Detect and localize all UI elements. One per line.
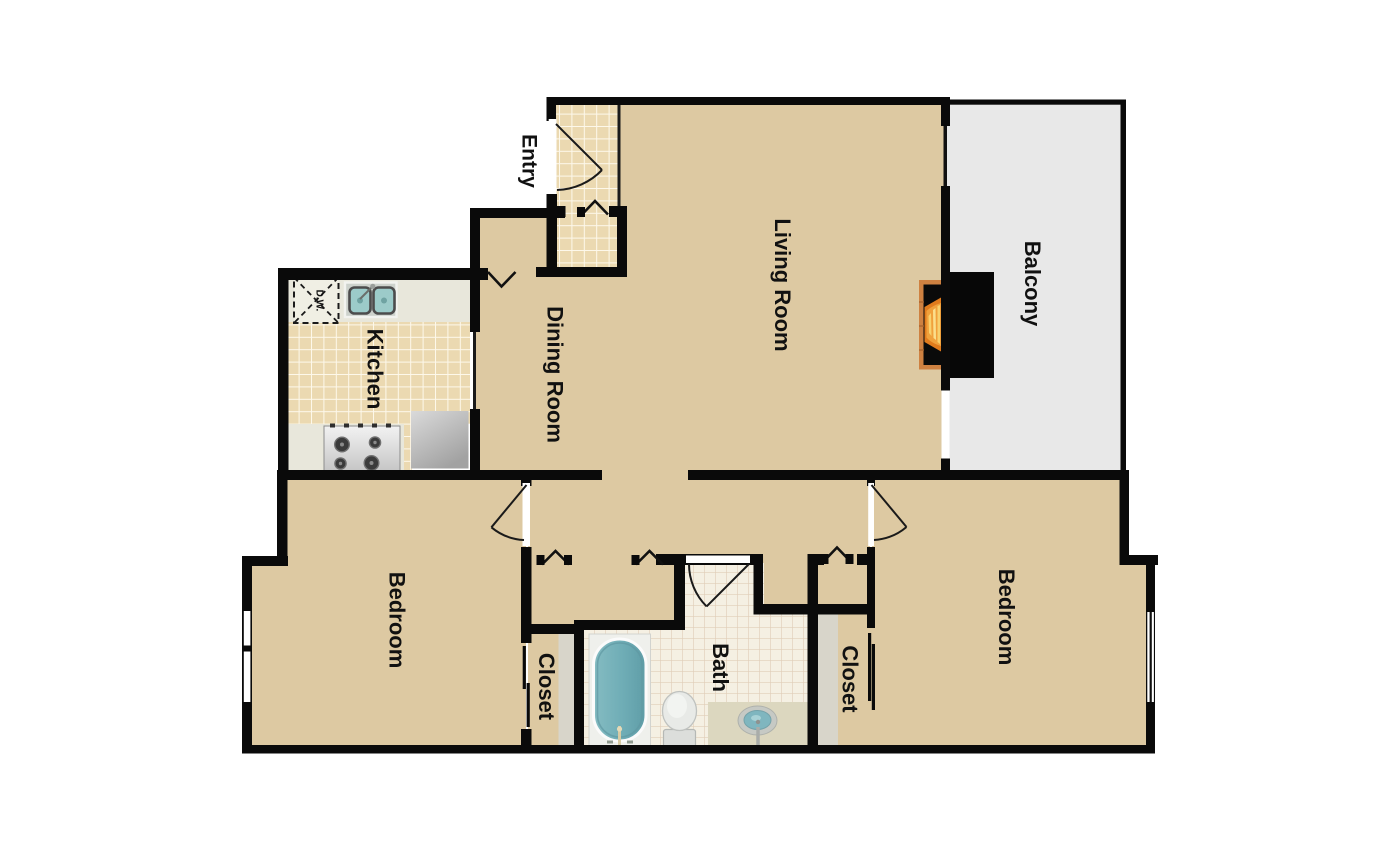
svg-text:Closet: Closet [534,653,559,721]
svg-text:Kitchen: Kitchen [363,329,388,410]
svg-text:Living Room: Living Room [770,218,795,351]
svg-text:Entry: Entry [518,134,541,188]
svg-text:Closet: Closet [838,645,863,713]
svg-text:Balcony: Balcony [1020,241,1045,327]
svg-text:Dining Room: Dining Room [543,306,568,443]
svg-text:Bath: Bath [708,643,733,692]
svg-text:D.W.: D.W. [314,290,325,312]
svg-text:Bedroom: Bedroom [994,569,1019,666]
svg-text:Bedroom: Bedroom [385,572,410,669]
